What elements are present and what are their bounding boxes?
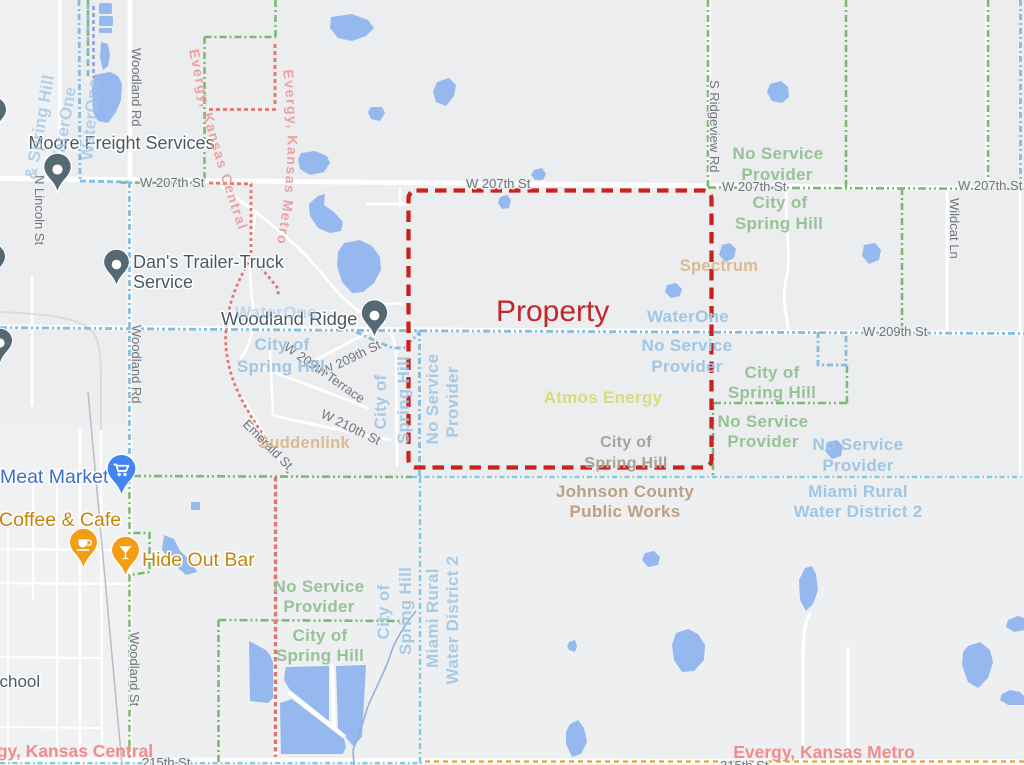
svg-text:Evergy, Kansas Metro: Evergy, Kansas Metro bbox=[733, 742, 915, 762]
svg-text:No Service: No Service bbox=[423, 354, 442, 445]
svg-text:N Lincoln St: N Lincoln St bbox=[32, 175, 47, 245]
svg-text:Provider: Provider bbox=[283, 597, 354, 616]
svg-text:City of: City of bbox=[293, 626, 348, 645]
svg-text:W 207th St: W 207th St bbox=[140, 175, 205, 190]
svg-text:Woodland Rd: Woodland Rd bbox=[129, 48, 144, 127]
svg-text:Meat Market: Meat Market bbox=[0, 466, 109, 488]
svg-text:W 209th St: W 209th St bbox=[863, 324, 928, 339]
svg-text:Evergy, Kansas Central: Evergy, Kansas Central bbox=[0, 741, 153, 761]
svg-text:Provider: Provider bbox=[651, 357, 722, 376]
svg-text:Spring Hill: Spring Hill bbox=[394, 356, 413, 444]
svg-text:City of: City of bbox=[371, 374, 390, 429]
svg-text:Property: Property bbox=[496, 295, 609, 328]
svg-text:Spectrum: Spectrum bbox=[680, 257, 759, 275]
svg-text:Atmos Energy: Atmos Energy bbox=[544, 388, 663, 407]
svg-text:Wildcat Ln: Wildcat Ln bbox=[947, 198, 962, 259]
svg-text:Provider: Provider bbox=[727, 432, 798, 451]
svg-text:City of: City of bbox=[753, 193, 808, 212]
svg-text:S Ridgeview Rd: S Ridgeview Rd bbox=[707, 80, 722, 173]
svg-text:Hide Out Bar: Hide Out Bar bbox=[142, 549, 255, 571]
svg-text:No Service: No Service bbox=[642, 336, 733, 355]
svg-text:No Service: No Service bbox=[274, 577, 365, 596]
svg-text:Woodland St: Woodland St bbox=[127, 632, 142, 707]
svg-text:Water District 2: Water District 2 bbox=[443, 556, 462, 685]
svg-text:Suddenlink: Suddenlink bbox=[258, 434, 350, 452]
svg-text:City of: City of bbox=[374, 584, 393, 639]
svg-text:Spring Hill: Spring Hill bbox=[584, 455, 667, 472]
svg-text:Miami Rural: Miami Rural bbox=[808, 482, 908, 501]
svg-text:Miami Rural: Miami Rural bbox=[423, 568, 442, 668]
svg-text:No Service: No Service bbox=[718, 412, 809, 431]
svg-text:Spring Hill: Spring Hill bbox=[396, 567, 415, 655]
svg-text:Spring Hill: Spring Hill bbox=[735, 214, 823, 233]
svg-text:Woodland Rd: Woodland Rd bbox=[129, 325, 144, 404]
svg-text:City of: City of bbox=[255, 335, 310, 354]
svg-text:Dan's Trailer-Truck: Dan's Trailer-Truck bbox=[133, 252, 285, 272]
svg-text:Service: Service bbox=[133, 272, 193, 292]
svg-text:City of: City of bbox=[600, 434, 652, 451]
svg-text:City of: City of bbox=[745, 363, 800, 382]
svg-text:W 207th St: W 207th St bbox=[466, 176, 531, 191]
svg-text:Public Works: Public Works bbox=[570, 502, 681, 521]
svg-text:Water District 2: Water District 2 bbox=[794, 502, 923, 521]
svg-text:No Service: No Service bbox=[813, 435, 904, 454]
svg-text:Johnson County: Johnson County bbox=[556, 482, 695, 501]
svg-text:WaterOne: WaterOne bbox=[647, 307, 729, 326]
svg-text:WaterOne: WaterOne bbox=[235, 303, 317, 322]
svg-text:Provider: Provider bbox=[822, 456, 893, 475]
svg-text:Provider: Provider bbox=[443, 366, 462, 437]
svg-text:Spring Hill: Spring Hill bbox=[728, 383, 816, 402]
svg-text:No Service: No Service bbox=[733, 144, 824, 163]
svg-text:Spring Hill: Spring Hill bbox=[276, 646, 364, 665]
svg-text:Coffee & Cafe: Coffee & Cafe bbox=[0, 509, 121, 531]
svg-text:Spring Hill: Spring Hill bbox=[237, 357, 325, 376]
svg-text:school: school bbox=[0, 672, 40, 691]
svg-text:W 207th St: W 207th St bbox=[958, 178, 1023, 193]
svg-text:Provider: Provider bbox=[741, 165, 812, 184]
